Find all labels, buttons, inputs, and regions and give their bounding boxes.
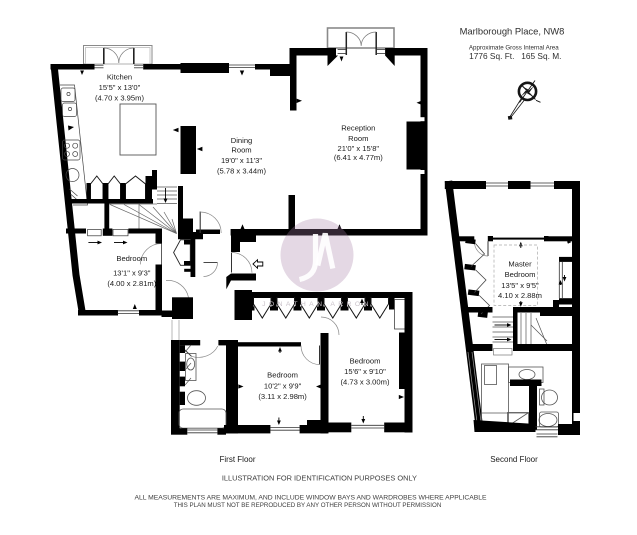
svg-text:10'2" x 9'9": 10'2" x 9'9" [264, 382, 302, 391]
svg-text:(4.70 x 3.95m): (4.70 x 3.95m) [95, 94, 144, 103]
svg-text:4.10 x 2.88m: 4.10 x 2.88m [498, 291, 542, 300]
svg-text:Second Floor: Second Floor [490, 455, 538, 464]
svg-text:Dining: Dining [231, 136, 253, 145]
svg-text:Bedroom: Bedroom [505, 270, 536, 279]
svg-text:Master: Master [508, 259, 532, 268]
svg-text:15'5" x 13'0": 15'5" x 13'0" [99, 83, 141, 92]
svg-text:(3.11 x 2.98m): (3.11 x 2.98m) [258, 392, 307, 401]
svg-text:Room: Room [231, 146, 251, 155]
svg-text:ILLUSTRATION FOR IDENTIFICATIO: ILLUSTRATION FOR IDENTIFICATION PURPOSES… [222, 474, 417, 483]
svg-text:Room: Room [348, 134, 368, 143]
svg-text:Bedroom: Bedroom [116, 254, 147, 263]
svg-text:13'5" x 9'5": 13'5" x 9'5" [501, 281, 539, 290]
svg-text:Marlborough Place, NW8: Marlborough Place, NW8 [460, 26, 565, 37]
svg-text:ALL MEASUREMENTS ARE MAXIMUM,: ALL MEASUREMENTS ARE MAXIMUM, AND INCLUD… [135, 495, 487, 502]
svg-text:(6.41 x 4.77m): (6.41 x 4.77m) [334, 153, 383, 162]
svg-text:(4.00 x 2.81m): (4.00 x 2.81m) [107, 279, 156, 288]
svg-text:First Floor: First Floor [220, 455, 256, 464]
svg-text:21'0" x 15'8": 21'0" x 15'8" [337, 144, 379, 153]
svg-text:JONATHAN ARRON: JONATHAN ARRON [262, 301, 372, 308]
svg-text:13'1" x 9'3": 13'1" x 9'3" [113, 268, 151, 277]
svg-text:Kitchen: Kitchen [107, 73, 132, 82]
svg-text:THIS PLAN MUST NOT BE REPRODUC: THIS PLAN MUST NOT BE REPRODUCED BY ANY … [174, 502, 442, 509]
svg-text:Reception: Reception [341, 124, 375, 133]
svg-text:15'6" x 9'10": 15'6" x 9'10" [344, 367, 386, 376]
svg-text:Bedroom: Bedroom [267, 371, 298, 380]
svg-text:1776 Sq. Ft. 165 Sq. M.: 1776 Sq. Ft. 165 Sq. M. [469, 51, 561, 61]
svg-text:19'0" x 11'3": 19'0" x 11'3" [221, 156, 262, 165]
svg-text:(5.78 x 3.44m): (5.78 x 3.44m) [217, 167, 266, 176]
svg-text:(4.73 x 3.00m): (4.73 x 3.00m) [341, 377, 390, 386]
svg-text:Bedroom: Bedroom [350, 356, 381, 365]
